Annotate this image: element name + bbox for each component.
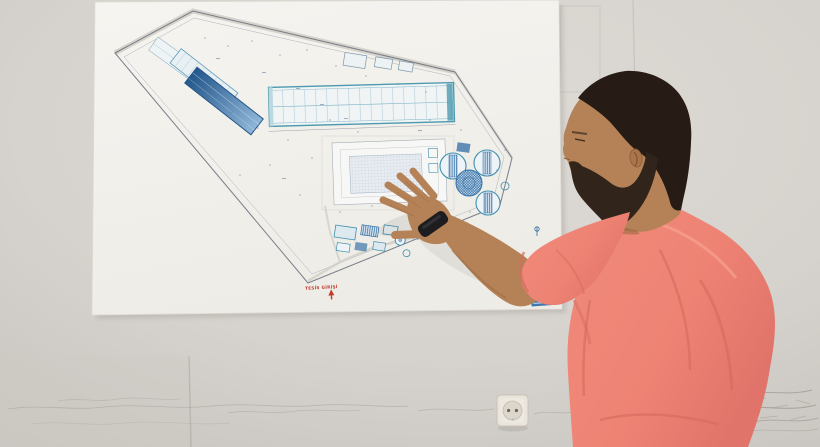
power-outlet — [497, 395, 528, 432]
small-tank — [456, 142, 470, 153]
photograph: TESİS GİRİŞİ — [0, 0, 820, 447]
wall-corner-shade — [0, 356, 189, 447]
digester-tank — [456, 170, 482, 196]
